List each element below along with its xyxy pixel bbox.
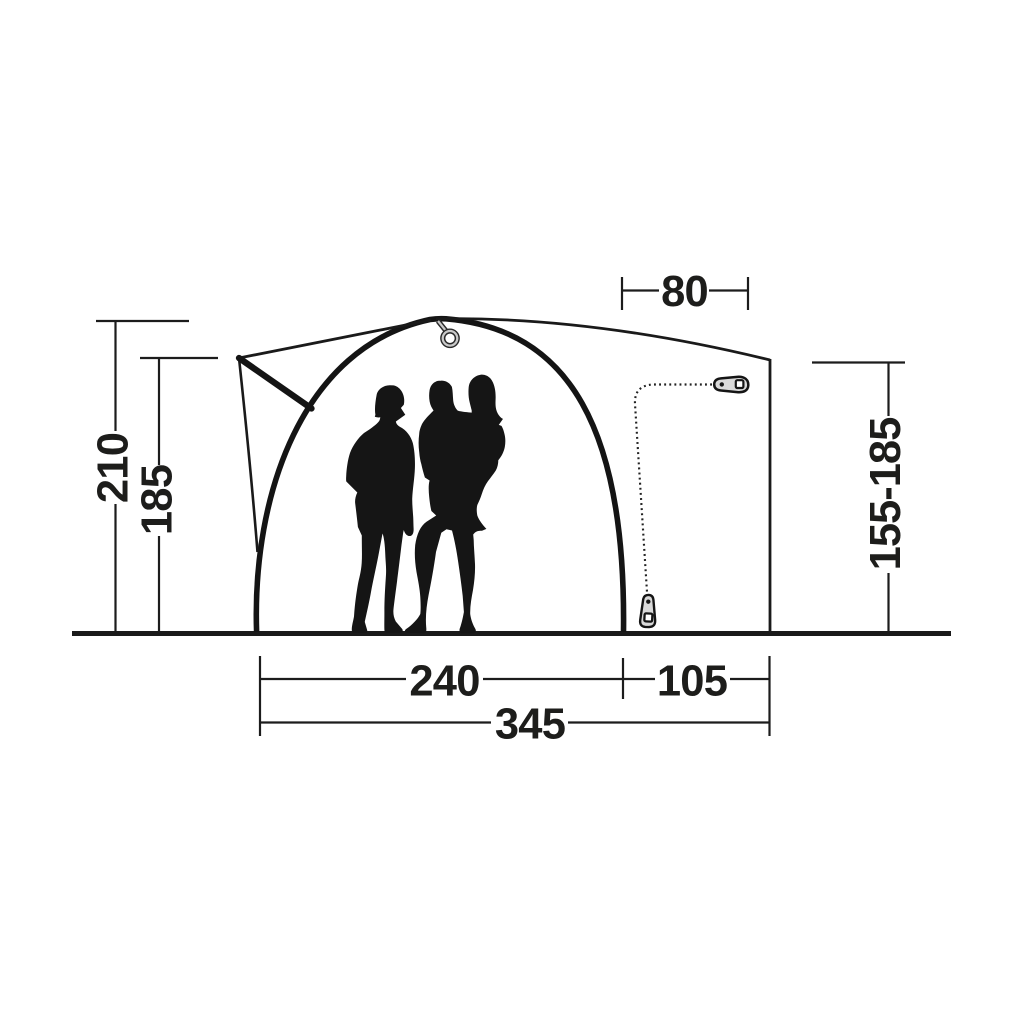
svg-text:240: 240: [409, 657, 479, 705]
svg-text:80: 80: [661, 268, 708, 316]
svg-text:185: 185: [134, 465, 182, 535]
svg-text:105: 105: [657, 657, 727, 705]
svg-text:345: 345: [495, 700, 565, 748]
svg-text:155-185: 155-185: [862, 418, 910, 571]
svg-text:210: 210: [90, 433, 138, 503]
